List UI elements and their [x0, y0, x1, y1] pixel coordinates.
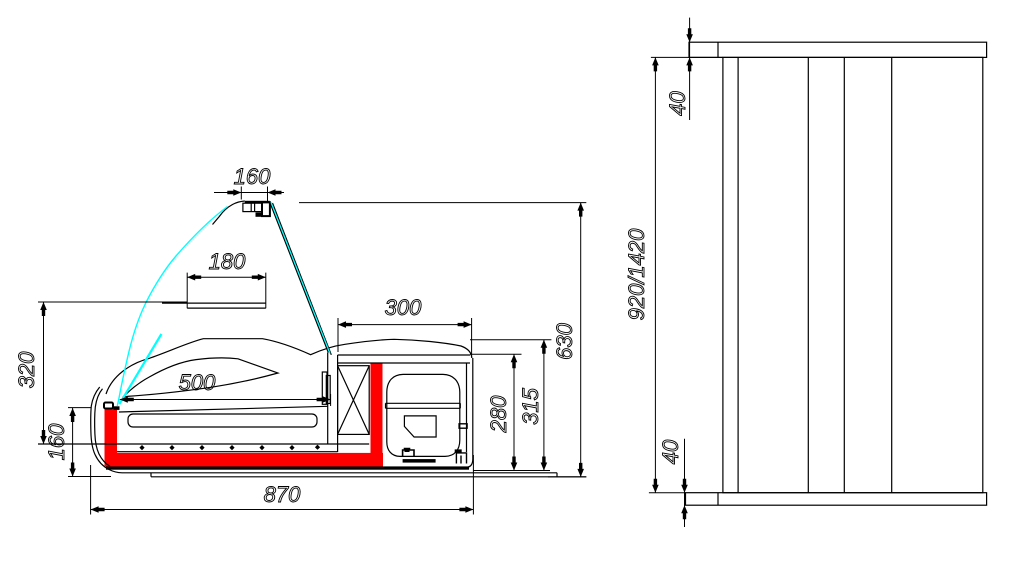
svg-text:160: 160 [44, 423, 69, 460]
svg-text:40: 40 [658, 439, 683, 464]
svg-text:500: 500 [179, 370, 216, 395]
svg-text:300: 300 [385, 295, 422, 320]
svg-text:315: 315 [518, 387, 543, 424]
svg-text:870: 870 [264, 482, 301, 507]
svg-text:40: 40 [665, 91, 690, 116]
svg-text:180: 180 [209, 249, 246, 274]
svg-text:160: 160 [234, 164, 271, 189]
svg-text:280: 280 [486, 395, 511, 433]
svg-text:320: 320 [14, 351, 39, 388]
svg-text:630: 630 [552, 322, 577, 359]
svg-text:920/1420: 920/1420 [624, 228, 649, 321]
